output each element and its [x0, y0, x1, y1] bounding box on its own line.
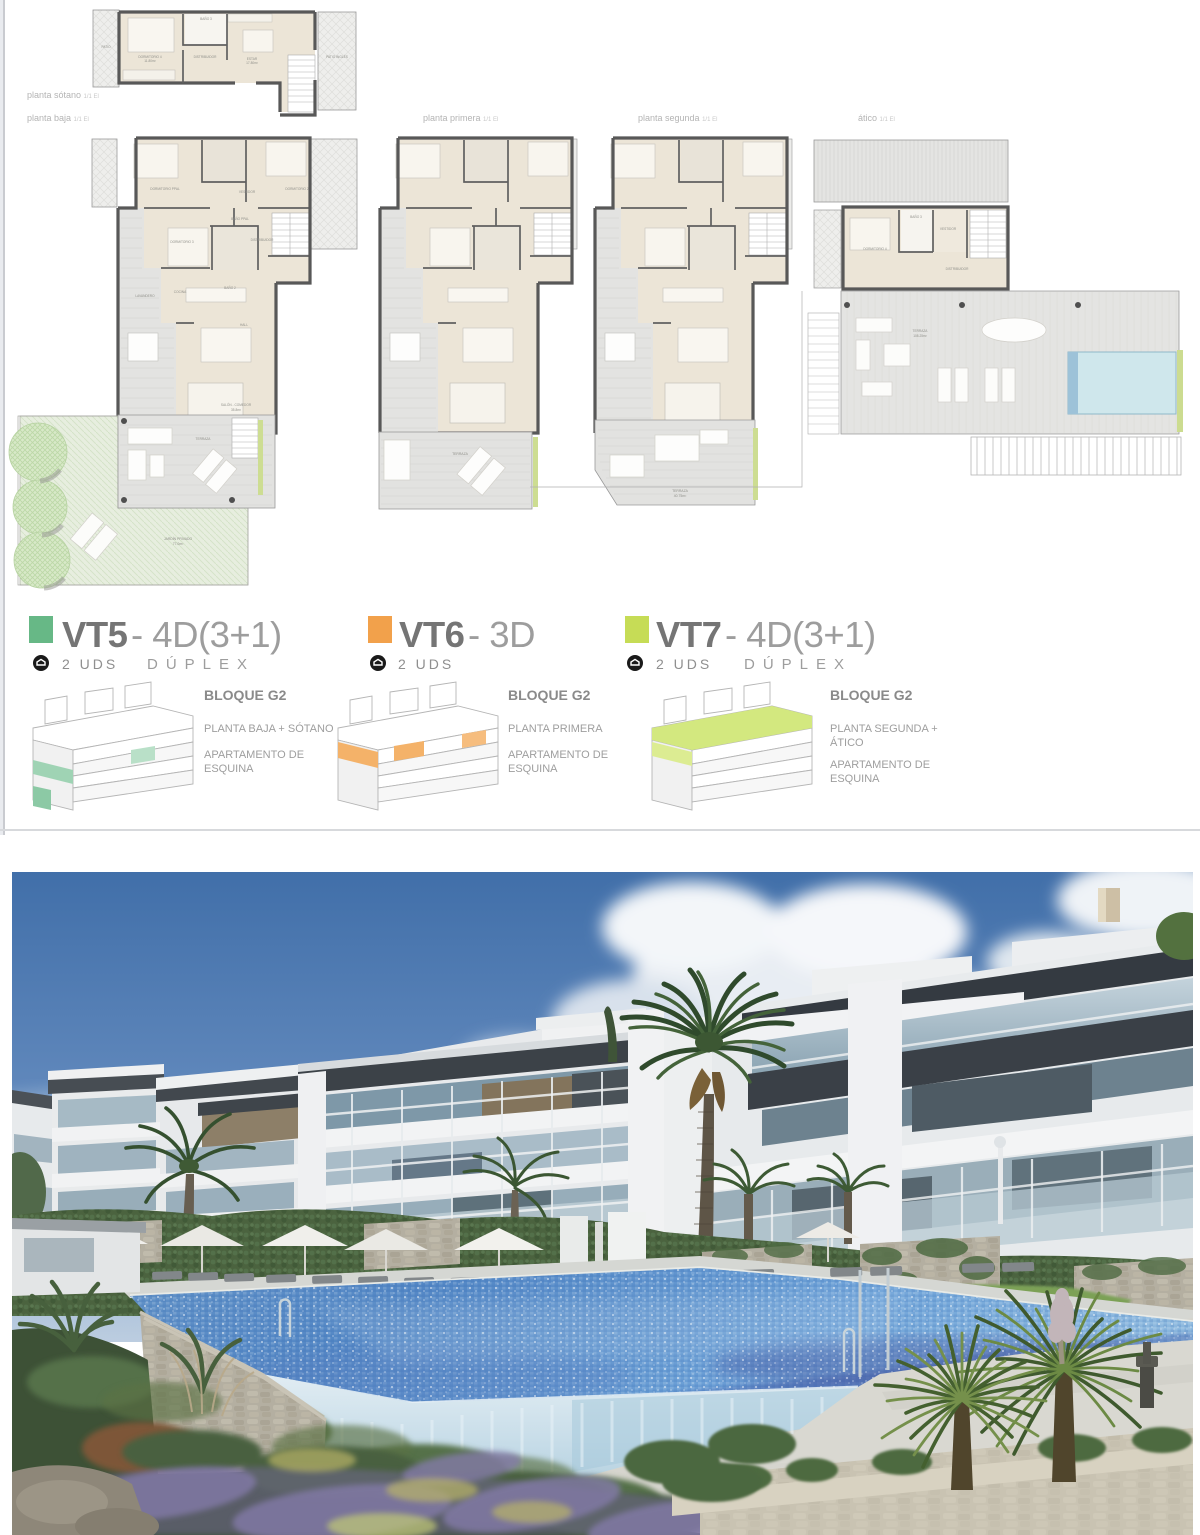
svg-text:35.8m²: 35.8m² [231, 408, 241, 412]
svg-text:- 3D: - 3D [468, 614, 535, 655]
svg-text:VT6: VT6 [399, 614, 464, 655]
svg-text:VESTIDOR: VESTIDOR [239, 190, 256, 194]
svg-text:2 UDS: 2 UDS [398, 656, 454, 672]
svg-text:11.80m²: 11.80m² [144, 59, 155, 63]
svg-text:APARTAMENTO DE: APARTAMENTO DE [508, 749, 608, 761]
svg-text:TERRAZA: TERRAZA [913, 329, 929, 333]
svg-text:PLANTA BAJA + SÓTANO: PLANTA BAJA + SÓTANO [204, 722, 334, 735]
svg-text:BAÑO 2: BAÑO 2 [224, 285, 236, 290]
svg-text:DISTRIBUIDOR: DISTRIBUIDOR [946, 267, 970, 271]
svg-text:BAÑO 3: BAÑO 3 [200, 16, 212, 21]
svg-text:SALÓN - COMEDOR: SALÓN - COMEDOR [221, 402, 252, 407]
svg-text:COCINA: COCINA [174, 290, 187, 294]
svg-text:APARTAMENTO DE: APARTAMENTO DE [204, 749, 304, 761]
svg-text:TERRAZA: TERRAZA [196, 437, 212, 441]
svg-text:LAVANDERO: LAVANDERO [135, 294, 155, 298]
svg-text:BAÑO 3: BAÑO 3 [910, 214, 922, 219]
svg-text:PATIO: PATIO [101, 45, 111, 49]
svg-text:ESQUINA: ESQUINA [830, 773, 880, 785]
svg-text:2 UDS: 2 UDS [656, 656, 712, 672]
svg-text:BLOQUE G2: BLOQUE G2 [830, 687, 913, 703]
svg-text:ático 1/1 El: ático 1/1 El [858, 113, 895, 123]
svg-text:40.75m²: 40.75m² [674, 494, 687, 498]
svg-text:BLOQUE G2: BLOQUE G2 [508, 687, 591, 703]
svg-text:- 4D(3+1): - 4D(3+1) [725, 614, 876, 655]
svg-text:planta sótano 1/1 El: planta sótano 1/1 El [27, 90, 99, 100]
svg-text:planta segunda 1/1 El: planta segunda 1/1 El [638, 113, 717, 123]
svg-text:JARDÍN PRIVADO: JARDÍN PRIVADO [164, 537, 193, 541]
svg-text:VT7: VT7 [656, 614, 721, 655]
svg-text:ÁTICO: ÁTICO [830, 736, 864, 749]
svg-text:DÚPLEX: DÚPLEX [744, 656, 852, 673]
svg-text:BLOQUE G2: BLOQUE G2 [204, 687, 287, 703]
svg-text:planta baja 1/1 El: planta baja 1/1 El [27, 113, 89, 123]
svg-text:HALL: HALL [240, 323, 248, 327]
svg-text:DISTRIBUIDOR: DISTRIBUIDOR [194, 55, 218, 59]
svg-text:APARTAMENTO DE: APARTAMENTO DE [830, 759, 930, 771]
svg-text:DORMITORIO 4: DORMITORIO 4 [863, 247, 887, 251]
svg-text:TERRAZA: TERRAZA [672, 489, 689, 493]
svg-text:108.25m²: 108.25m² [913, 334, 926, 338]
svg-text:DÚPLEX: DÚPLEX [147, 656, 255, 673]
svg-text:ESQUINA: ESQUINA [508, 763, 558, 775]
svg-text:PLANTA SEGUNDA +: PLANTA SEGUNDA + [830, 723, 938, 735]
svg-text:- 4D(3+1): - 4D(3+1) [131, 614, 282, 655]
svg-text:BAÑO PPAL: BAÑO PPAL [231, 216, 249, 221]
svg-text:DORMITORIO 2: DORMITORIO 2 [285, 187, 309, 191]
svg-text:VT5: VT5 [62, 614, 128, 655]
svg-text:2 UDS: 2 UDS [62, 656, 118, 672]
svg-text:ESQUINA: ESQUINA [204, 763, 254, 775]
svg-text:17.80m²: 17.80m² [246, 61, 258, 65]
svg-text:DORMITORIO 3: DORMITORIO 3 [170, 240, 194, 244]
svg-text:DISTRIBUIDOR: DISTRIBUIDOR [251, 238, 275, 242]
svg-text:PATIO INGLÉS: PATIO INGLÉS [326, 54, 348, 59]
svg-text:77.0m²: 77.0m² [173, 542, 184, 546]
svg-text:VESTIDOR: VESTIDOR [940, 227, 957, 231]
svg-text:PLANTA PRIMERA: PLANTA PRIMERA [508, 723, 603, 735]
svg-text:TERRAZA: TERRAZA [452, 452, 469, 456]
svg-text:planta primera 1/1 El: planta primera 1/1 El [423, 113, 498, 123]
svg-text:DORMITORIO PPAL: DORMITORIO PPAL [150, 187, 180, 191]
